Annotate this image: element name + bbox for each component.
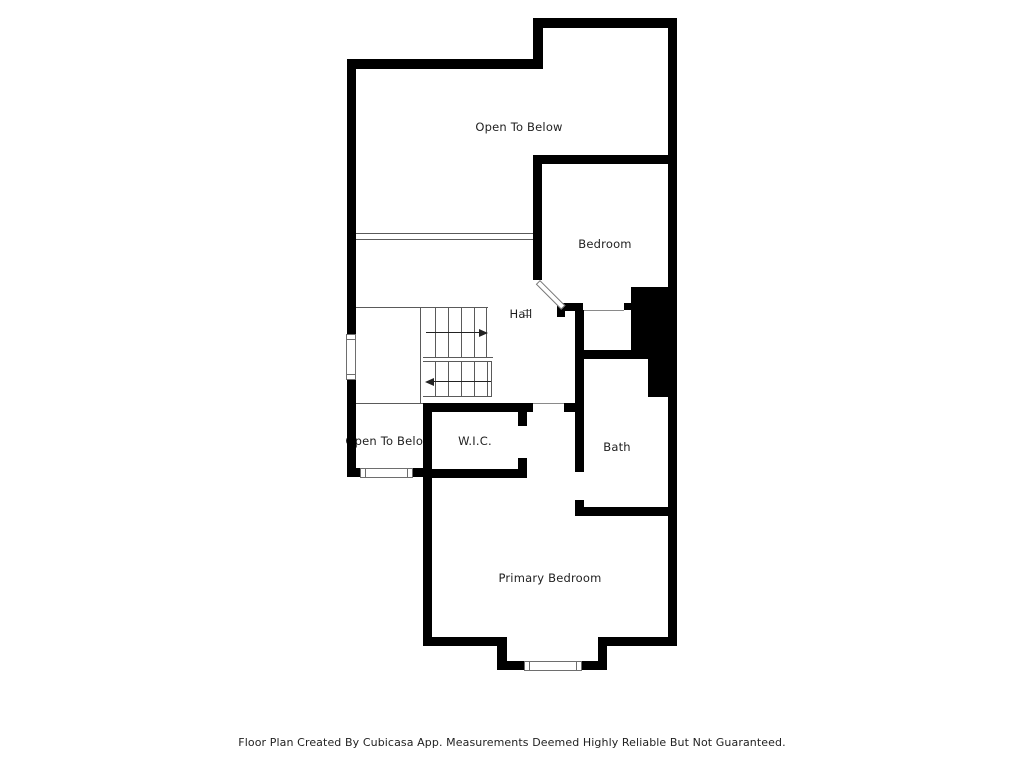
wall-corridor-right xyxy=(575,310,584,472)
floor-plan: Open To Below Bedroom Hall Open To Below… xyxy=(0,0,1024,768)
left-wall-window xyxy=(346,334,356,380)
wall-shaft-lower xyxy=(648,358,668,397)
wall-bump-bottom-a xyxy=(497,661,525,670)
wall-wic-primary-left xyxy=(423,403,432,646)
wall-wic-bottom xyxy=(423,469,527,478)
wall-bath-bottom xyxy=(577,507,677,516)
room-label-bath: Bath xyxy=(603,440,631,454)
wall-shaft-upper xyxy=(631,287,668,358)
railing-line-top xyxy=(356,233,533,234)
wall-alcove-jamb xyxy=(624,303,631,310)
wall-bottom-left-a xyxy=(347,468,360,477)
primary-bedroom-window xyxy=(524,661,582,671)
footer-disclaimer: Floor Plan Created By Cubicasa App. Meas… xyxy=(0,736,1024,749)
wall-hall-bottom-stub xyxy=(564,403,584,412)
wall-left-outer-upper xyxy=(347,59,356,334)
stair-landing-line xyxy=(423,357,493,358)
wall-right-outer xyxy=(668,18,677,646)
stair-arrow-down-line xyxy=(433,381,491,382)
stair-arrow-left-icon xyxy=(425,378,434,386)
railing-line-bottom xyxy=(356,239,533,240)
room-label-open-to-below-top: Open To Below xyxy=(475,120,562,134)
wall-top-left-section xyxy=(347,59,543,69)
wall-hall-bottom xyxy=(423,403,533,412)
stair-arrow-up-line xyxy=(426,332,481,333)
cased-opening-hall xyxy=(533,403,564,404)
cased-opening-alcove xyxy=(584,310,624,311)
wall-bedroom-left xyxy=(533,164,542,280)
stair-enclosure-divider xyxy=(420,307,421,404)
room-label-open-to-below-small: Open To Below xyxy=(345,434,432,448)
wall-top-upper xyxy=(533,18,677,28)
room-label-primary-bedroom: Primary Bedroom xyxy=(498,571,601,585)
wall-primary-bottom-right xyxy=(598,637,677,646)
wall-alcove-bottom xyxy=(575,350,648,359)
room-label-bedroom: Bedroom xyxy=(578,237,631,251)
room-label-hall: Hall xyxy=(510,307,533,321)
stair-enclosure-bottom xyxy=(356,403,423,404)
room-label-wic: W.I.C. xyxy=(458,434,492,448)
stair-arrow-right-icon xyxy=(479,329,488,337)
lower-left-window xyxy=(360,468,413,478)
wall-primary-bottom-left xyxy=(423,637,507,646)
wall-door-stub-tab xyxy=(557,311,565,317)
wall-wic-right-a xyxy=(518,412,527,426)
bedroom-door-leaf xyxy=(536,280,566,310)
wall-left-outer-lower xyxy=(347,380,356,477)
wall-bedroom-top xyxy=(533,155,677,164)
